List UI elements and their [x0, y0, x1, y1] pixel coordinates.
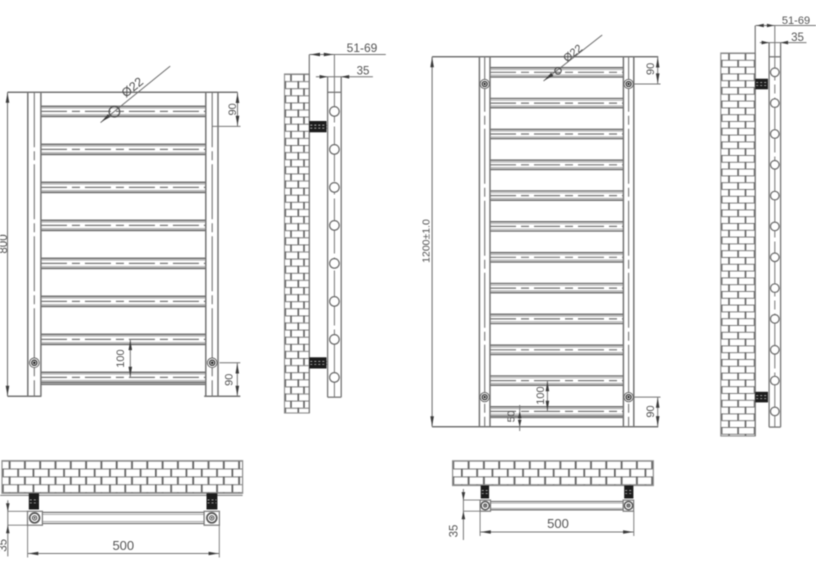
svg-text:500: 500: [547, 516, 569, 531]
svg-text:500: 500: [112, 538, 134, 553]
svg-text:90: 90: [645, 63, 657, 75]
svg-text:90: 90: [227, 103, 239, 115]
svg-text:35: 35: [449, 525, 461, 538]
svg-text:90: 90: [224, 374, 236, 386]
svg-text:1200±1.0: 1200±1.0: [421, 219, 433, 263]
svg-text:35: 35: [0, 539, 10, 552]
svg-text:90: 90: [645, 405, 657, 417]
svg-text:35: 35: [357, 66, 370, 78]
svg-text:51-69: 51-69: [782, 15, 810, 27]
svg-text:50: 50: [506, 411, 518, 423]
svg-text:35: 35: [791, 32, 804, 44]
svg-text:100: 100: [535, 386, 547, 404]
svg-text:800: 800: [0, 234, 10, 253]
svg-text:51-69: 51-69: [347, 41, 378, 55]
svg-text:100: 100: [115, 349, 127, 367]
